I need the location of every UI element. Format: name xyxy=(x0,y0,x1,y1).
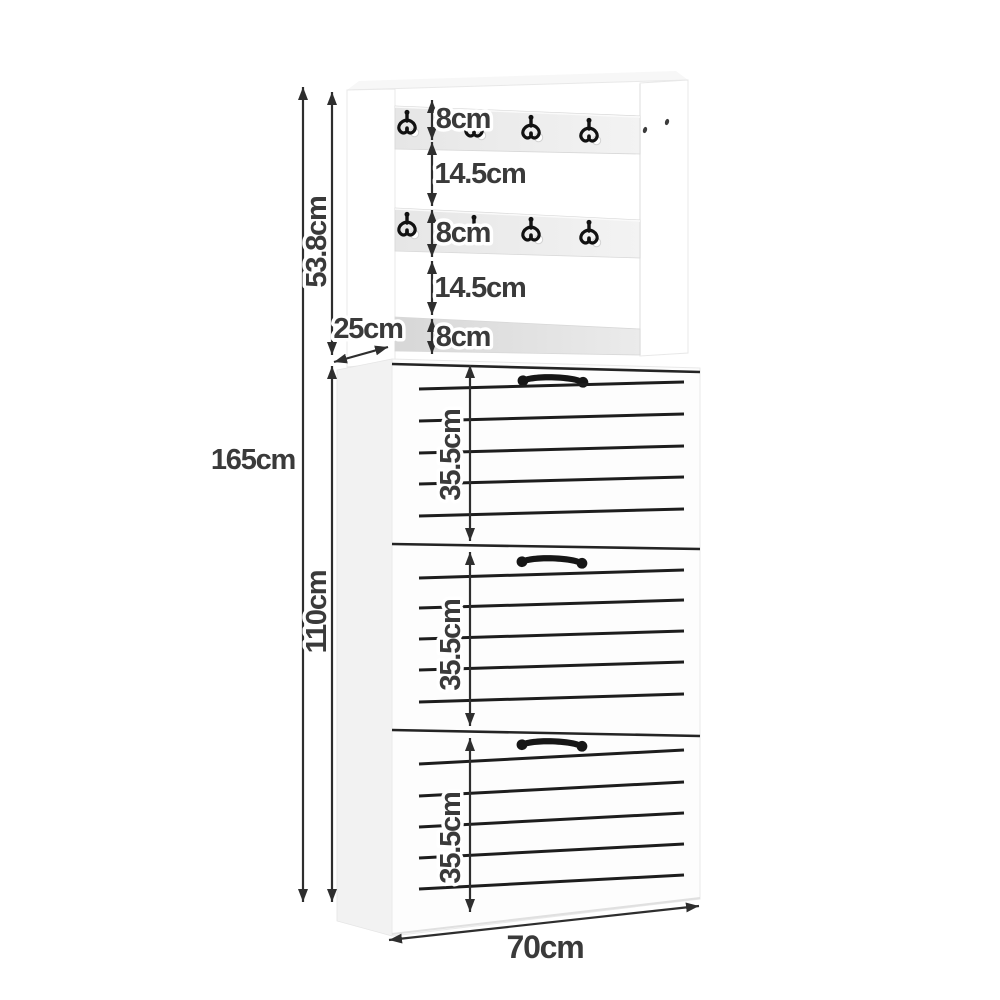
dim-label-overall-height: 165cm xyxy=(211,444,295,476)
dim-label-rail3-height: 8cm xyxy=(436,321,490,353)
dim-label-depth: 25cm xyxy=(333,313,402,345)
dim-label-rail2-height: 8cm xyxy=(436,217,490,249)
dim-label-cabinet-height: 110cm xyxy=(301,571,333,654)
dim-label-rack-height: 53.8cm xyxy=(301,196,333,287)
dim-gap2: 14.5cm xyxy=(432,261,526,315)
dim-label-drawer1-height: 35.5cm xyxy=(435,409,467,500)
diagram-svg: 165cm 53.8cm 110cm 25cm 8cm 14.5cm 8cm xyxy=(0,0,1000,1000)
dim-label-drawer3-height: 35.5cm xyxy=(435,792,467,883)
dim-rail3-height: 8cm xyxy=(432,319,490,354)
dim-label-gap1: 14.5cm xyxy=(434,158,525,190)
product-dimension-diagram: 165cm 53.8cm 110cm 25cm 8cm 14.5cm 8cm xyxy=(0,0,1000,1000)
dim-rack-height: 53.8cm xyxy=(301,92,333,355)
dim-overall-height: 165cm xyxy=(211,87,303,902)
dim-label-rail1-height: 8cm xyxy=(436,103,490,135)
dim-rail1-height: 8cm xyxy=(432,100,490,140)
shoe-cabinet xyxy=(337,359,700,936)
dim-cabinet-height: 110cm xyxy=(301,366,333,902)
dim-label-gap2: 14.5cm xyxy=(434,272,525,304)
hutch-right-post xyxy=(640,80,688,356)
dim-label-drawer2-height: 35.5cm xyxy=(435,599,467,690)
dim-label-width: 70cm xyxy=(506,929,583,965)
cabinet-side-panel xyxy=(337,359,392,936)
